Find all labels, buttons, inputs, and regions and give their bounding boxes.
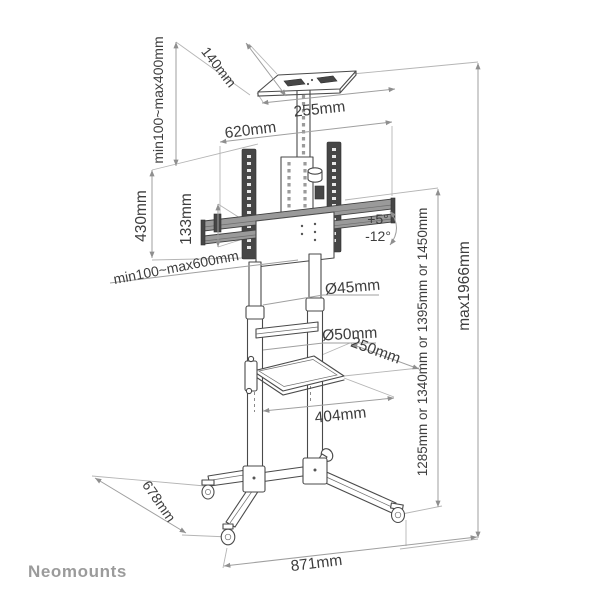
leg-front-right-detail: [322, 475, 394, 508]
upper-pole-right: [309, 254, 321, 300]
bracket-hook: [315, 186, 324, 199]
tray-dot-1: [307, 83, 309, 85]
drawing-svg: min100~max400mm 140mm 255mm 620mm 430mm …: [0, 0, 600, 600]
plate-hole-5: [314, 239, 316, 241]
ext-bar-upper: [218, 204, 240, 218]
hub-right-bolt: [314, 469, 317, 472]
shelf-clamp-hook-top: [248, 356, 253, 361]
ext-250-front: [344, 368, 419, 376]
shelf-top: [253, 356, 344, 391]
ext-140: [249, 44, 277, 74]
caster-rear-left-wheel: [202, 485, 214, 499]
ext-1285-bottom: [402, 506, 442, 514]
caster-front-left-plate: [223, 524, 233, 529]
ext-1966-top: [352, 62, 478, 74]
tension-knob-top: [308, 168, 322, 174]
tray-top-face: [258, 71, 356, 92]
tray-dot-2: [311, 79, 313, 81]
ext-404-right: [344, 378, 394, 397]
label-tray-depth: 140mm: [198, 44, 239, 91]
dimension-labels: min100~max400mm 140mm 255mm 620mm 430mm …: [112, 36, 473, 575]
plate-hole-3: [314, 223, 316, 225]
label-mount-height-range: min100~max600mm: [112, 247, 240, 287]
plate-hole-2: [301, 233, 303, 235]
mount-column-strip: [281, 157, 313, 217]
caster-front-right-wheel: [392, 508, 405, 523]
product-dimension-drawing: min100~max400mm 140mm 255mm 620mm 430mm …: [0, 0, 600, 600]
label-bracket-width: 620mm: [224, 119, 277, 142]
shelf-clamp: [245, 361, 257, 391]
caster-rear-left-plate: [202, 480, 214, 485]
label-tilt-up: +5°: [367, 211, 389, 227]
crossbar-endcap-left: [201, 220, 205, 245]
plate-hole-4: [314, 231, 316, 233]
lower-pole-right: [308, 311, 323, 462]
label-max-height: max1966mm: [456, 241, 473, 331]
column-plate: [256, 212, 334, 267]
shelf-clamp-hook-bottom: [246, 388, 251, 393]
ext-871-left: [223, 548, 227, 568]
label-tilt-down: -12°: [365, 228, 391, 244]
label-pole-height-options: 1285mm or 1340mm or 1395mm or 1450mm: [415, 208, 430, 477]
plate-hole-1: [301, 225, 303, 227]
collar-right: [306, 298, 324, 311]
brand-logo: Neomounts: [28, 562, 127, 581]
label-base-depth: 678mm: [139, 477, 179, 524]
leg-front-left-detail: [230, 490, 253, 523]
label-top-height-range: min100~max400mm: [150, 36, 166, 163]
label-crossbar-gap: 133mm: [178, 193, 195, 245]
collar-left: [246, 306, 264, 319]
label-base-width: 871mm: [290, 552, 343, 575]
caster-front-left-wheel: [221, 529, 235, 545]
dim-line-base-width: [224, 537, 477, 566]
upper-pole-left: [249, 262, 261, 308]
floor-stand-structure: [201, 71, 405, 545]
base: [202, 447, 405, 545]
label-bracket-height: 430mm: [133, 190, 150, 242]
hub-left-bolt: [253, 477, 256, 480]
